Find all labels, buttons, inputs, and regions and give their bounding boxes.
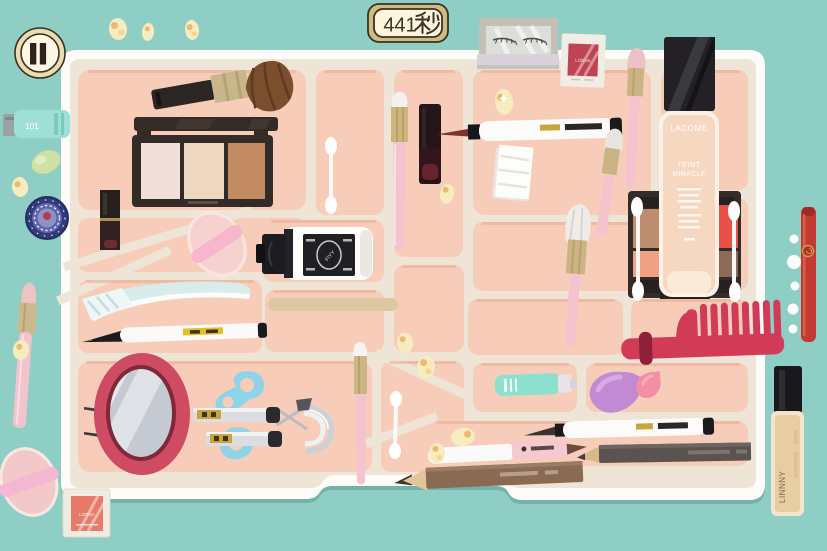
svg-text:LINNNY: LINNNY [778,470,787,503]
svg-text:MIRACLE: MIRACLE [672,171,705,178]
svg-text:441: 441 [383,15,416,37]
svg-text:LACOME: LACOME [670,124,707,133]
svg-text:LORNA: LORNA [575,58,591,64]
svg-text:101: 101 [25,122,39,131]
svg-text:TEINT: TEINT [677,162,700,169]
svg-text:LORNA: LORNA [79,512,95,517]
